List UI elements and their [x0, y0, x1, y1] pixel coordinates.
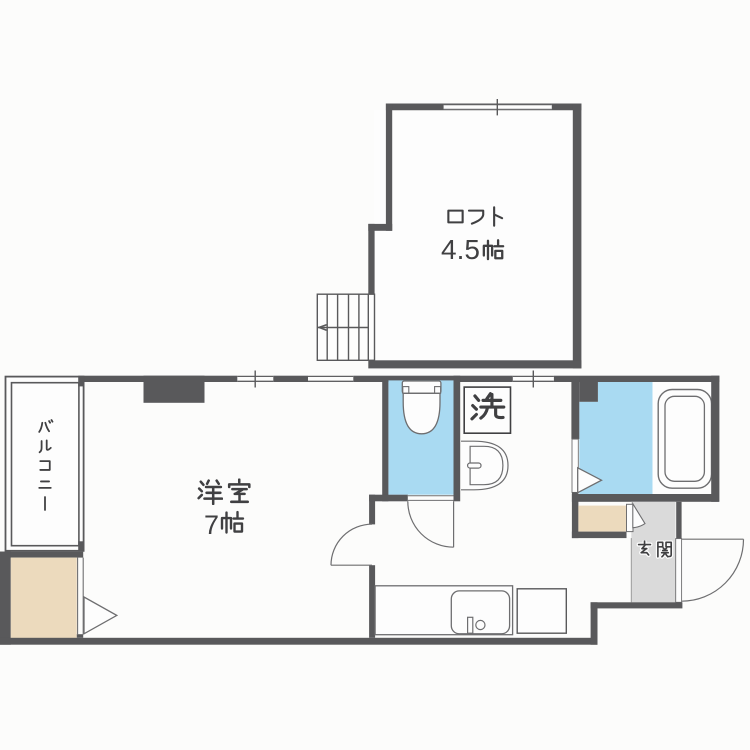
- svg-text:7: 7: [204, 510, 219, 540]
- svg-text:4.5: 4.5: [441, 234, 480, 265]
